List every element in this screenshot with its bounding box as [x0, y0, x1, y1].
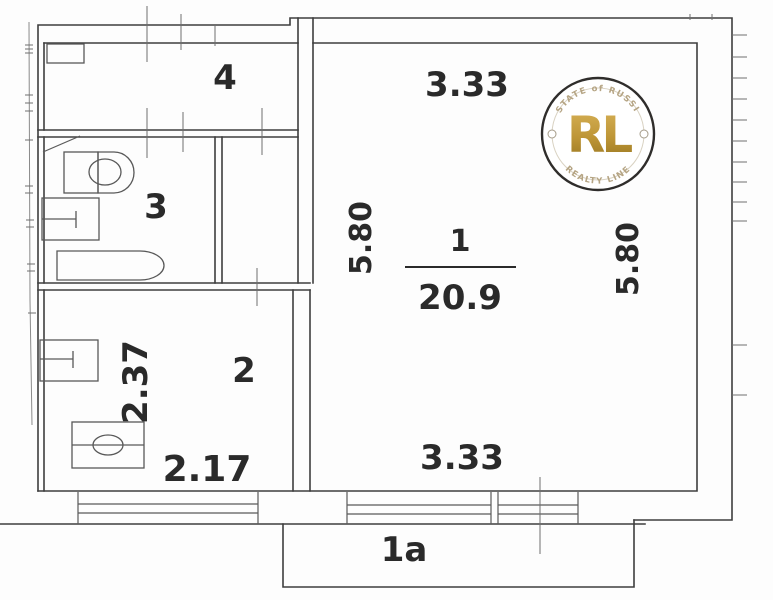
kitchen-sink [40, 340, 98, 381]
windows [78, 492, 578, 524]
room-1-area: 20.9 [418, 278, 502, 318]
room-1-label: 1 [450, 224, 471, 259]
logo-left-rivet-icon [548, 130, 556, 138]
toilet [64, 152, 134, 193]
floor-plan-drawing: 4 3 2 1 20.9 1a 3.33 3.33 5.80 5.80 2.37… [0, 0, 773, 600]
balcony-outline [283, 520, 634, 587]
room-3-label: 3 [144, 187, 168, 227]
dim-right-height: 5.80 [611, 222, 646, 296]
logo-right-rivet-icon [640, 130, 648, 138]
dim-kitchen-width: 2.17 [163, 449, 252, 490]
bathtub [57, 251, 164, 280]
stove [72, 422, 144, 468]
dim-left-height: 5.80 [344, 201, 379, 275]
dim-bottom-width: 3.33 [420, 438, 504, 478]
dim-top-width: 3.33 [425, 65, 509, 105]
room-2-label: 2 [232, 351, 256, 391]
balcony-label: 1a [381, 530, 428, 570]
bathroom-door-line [43, 136, 80, 152]
scan-edge [25, 22, 36, 425]
dim-kitchen-height: 2.37 [116, 340, 156, 424]
hall-closet [47, 44, 84, 63]
floor-plan-canvas: 4 3 2 1 20.9 1a 3.33 3.33 5.80 5.80 2.37… [0, 0, 773, 600]
room-4-label: 4 [213, 58, 237, 98]
interior-walls [38, 18, 313, 491]
logo-monogram: RL [567, 106, 633, 164]
bathroom-sink [42, 198, 99, 240]
